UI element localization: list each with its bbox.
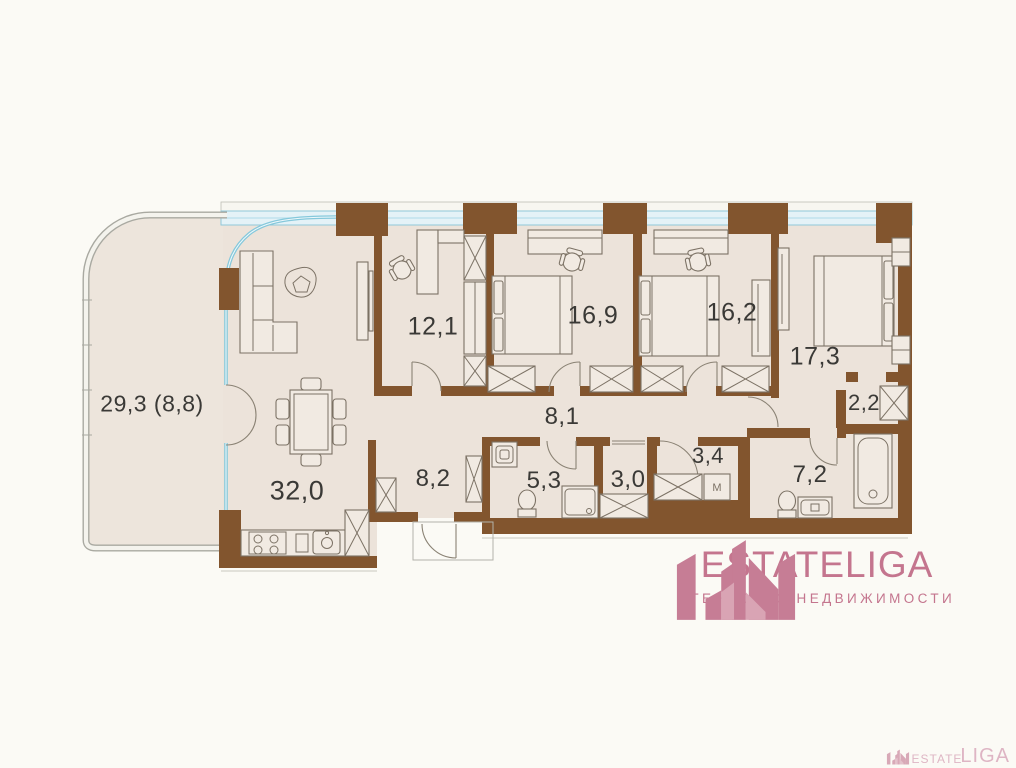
toilet-icon (778, 491, 796, 518)
bed-icon (492, 276, 572, 354)
estateliga-logo-icon (672, 538, 800, 622)
bed-icon (814, 256, 894, 346)
watermark-icon (886, 749, 910, 765)
bed-icon (639, 276, 719, 356)
storage-shelf-icon (600, 494, 648, 518)
window-glazing (221, 202, 912, 225)
watermark: ESTATE LIGA (886, 748, 1010, 765)
sink-vanity-icon (798, 497, 832, 518)
tv-console-icon (357, 262, 373, 340)
entrance-landing (413, 522, 493, 560)
bathtub-icon (854, 434, 892, 508)
water-heater-icon (492, 442, 517, 467)
watermark-text-large: LIGA (960, 748, 1010, 765)
floor-plan-page: М 29,3 (8,8)32,012,116,916,217,38,18,25,… (0, 0, 1016, 768)
fridge-icon (345, 510, 369, 556)
wardrobe-icon (880, 386, 908, 420)
terrace-floor (86, 217, 225, 548)
dresser-icon (752, 280, 770, 356)
floor-plan: М (0, 0, 1016, 768)
mirror-cabinet-icon (778, 248, 789, 330)
bedroom1-desk-icon (528, 230, 602, 254)
toilet-icon (518, 490, 536, 517)
washing-machine-symbol: М (712, 482, 721, 494)
watermark-text-small: ESTATE (912, 753, 963, 765)
wardrobe-icon (654, 474, 702, 500)
study-wardrobe-icon (464, 236, 486, 386)
washing-machine-icon: М (704, 474, 730, 500)
shower-icon (562, 486, 598, 518)
kitchen-sink-icon (313, 531, 340, 554)
estateliga-logo: ESTATELIGA АГЕНТСТВО НЕДВИЖИМОСТИ (672, 538, 962, 606)
